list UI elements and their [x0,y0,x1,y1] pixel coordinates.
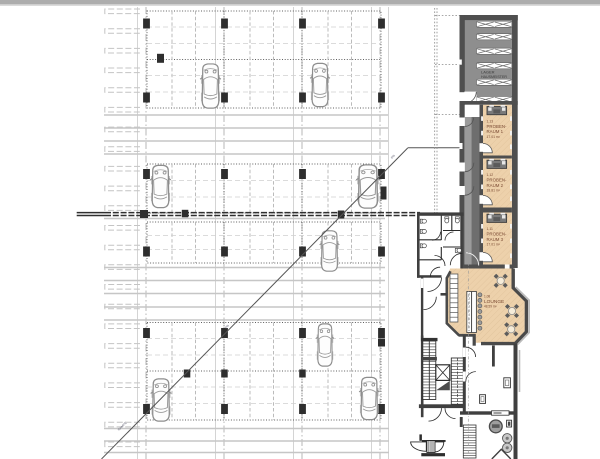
svg-text:LAGER: LAGER [481,70,495,75]
svg-text:RAUM 2: RAUM 2 [487,183,504,188]
svg-text:17.01 m²: 17.01 m² [487,243,501,247]
svg-text:1.08: 1.08 [484,294,490,298]
svg-text:RAUM 1: RAUM 1 [487,129,504,134]
svg-text:48.59 m²: 48.59 m² [484,305,497,309]
svg-text:HAUSMEISTER: HAUSMEISTER [481,75,507,79]
svg-text:1.11: 1.11 [487,227,493,231]
svg-text:17.01 m²: 17.01 m² [487,135,501,139]
svg-text:1.13: 1.13 [487,119,494,123]
svg-text:RAUM 3: RAUM 3 [487,237,504,242]
svg-text:1.12: 1.12 [487,173,494,177]
svg-text:18.81 m²: 18.81 m² [487,189,501,193]
